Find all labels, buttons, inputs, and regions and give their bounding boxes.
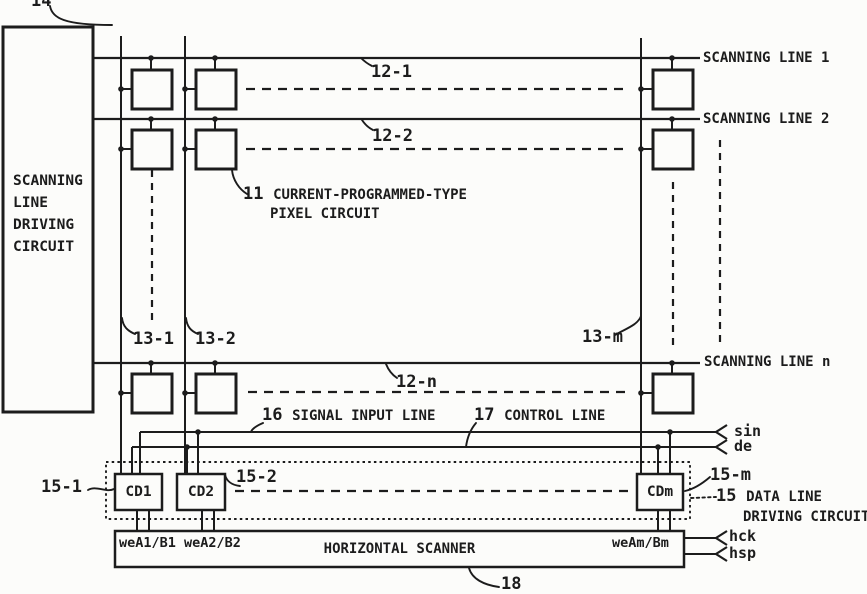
pixel-circuit-box [653,70,693,109]
pixel-circuit-box [132,374,172,413]
ref-label-13-2: 13-2 [195,330,236,349]
ref-label-15-2: 15-2 [236,468,277,487]
scanning-line-2-label: SCANNING LINE 2 [703,112,829,127]
signal-and-control-buses [132,432,716,474]
ref-label-13-1: 13-1 [133,330,174,349]
ref-11-number: 11 [243,184,263,204]
ref-label-17: 17 CONTROL LINE [474,406,605,425]
patent-figure-canvas: 14 SCANNING LINE DRIVING CIRCUIT SCANNIN… [0,0,867,594]
ref-11-text: CURRENT-PROGRAMMED-TYPE [273,187,467,203]
ref-17-number: 17 [474,405,494,425]
ref-label-12-2: 12-2 [372,127,413,146]
ref-label-18: 18 [501,575,521,594]
we-outputs-left-label: weA1/B1 weA2/B2 [119,536,241,551]
ref-label-15-m: 15-m [710,466,751,485]
ref-label-11-line2: PIXEL CIRCUIT [270,207,380,222]
signal-label-hck: hck [729,528,756,545]
ref-label-12-1: 12-1 [371,63,412,82]
pixel-circuit-box [196,130,236,169]
ref-label-15: 15 DATA LINE [716,487,822,506]
scanning-line-n-label: SCANNING LINE n [704,355,830,370]
we-outputs-right-label: weAm/Bm [612,536,669,551]
cdm-box-label: CDm [637,474,683,510]
ref-label-15-line2: DRIVING CIRCUIT [743,510,867,525]
pixel-circuit-box [196,374,236,413]
circuit-blocks [3,27,693,567]
ref-15-text: DATA LINE [746,489,822,505]
ref-16-number: 16 [262,405,282,425]
ref-label-14: 14 [31,0,51,11]
pixel-circuit-box [132,70,172,109]
ref-17-text: CONTROL LINE [504,408,605,424]
cd1-box-label: CD1 [115,474,162,510]
ref-16-text: SIGNAL INPUT LINE [292,408,435,424]
signal-label-de: de [734,438,752,455]
ref-label-15-1: 15-1 [41,478,82,497]
pixel-circuit-box [653,130,693,169]
pixel-circuit-box [196,70,236,109]
pixel-circuit-box [132,130,172,169]
ref-label-11: 11 CURRENT-PROGRAMMED-TYPE [243,185,467,204]
ref-label-12-n: 12-n [396,373,437,392]
cd2-box-label: CD2 [177,474,225,510]
ref-15-number: 15 [716,486,736,506]
scanning-line-driving-circuit-label: SCANNING LINE DRIVING CIRCUIT [13,170,83,258]
ref-label-13-m: 13-m [582,328,623,347]
signal-label-hsp: hsp [729,545,756,562]
pixel-circuit-box [653,374,693,413]
scanning-line-1-label: SCANNING LINE 1 [703,51,829,66]
ref-label-16: 16 SIGNAL INPUT LINE [262,406,435,425]
